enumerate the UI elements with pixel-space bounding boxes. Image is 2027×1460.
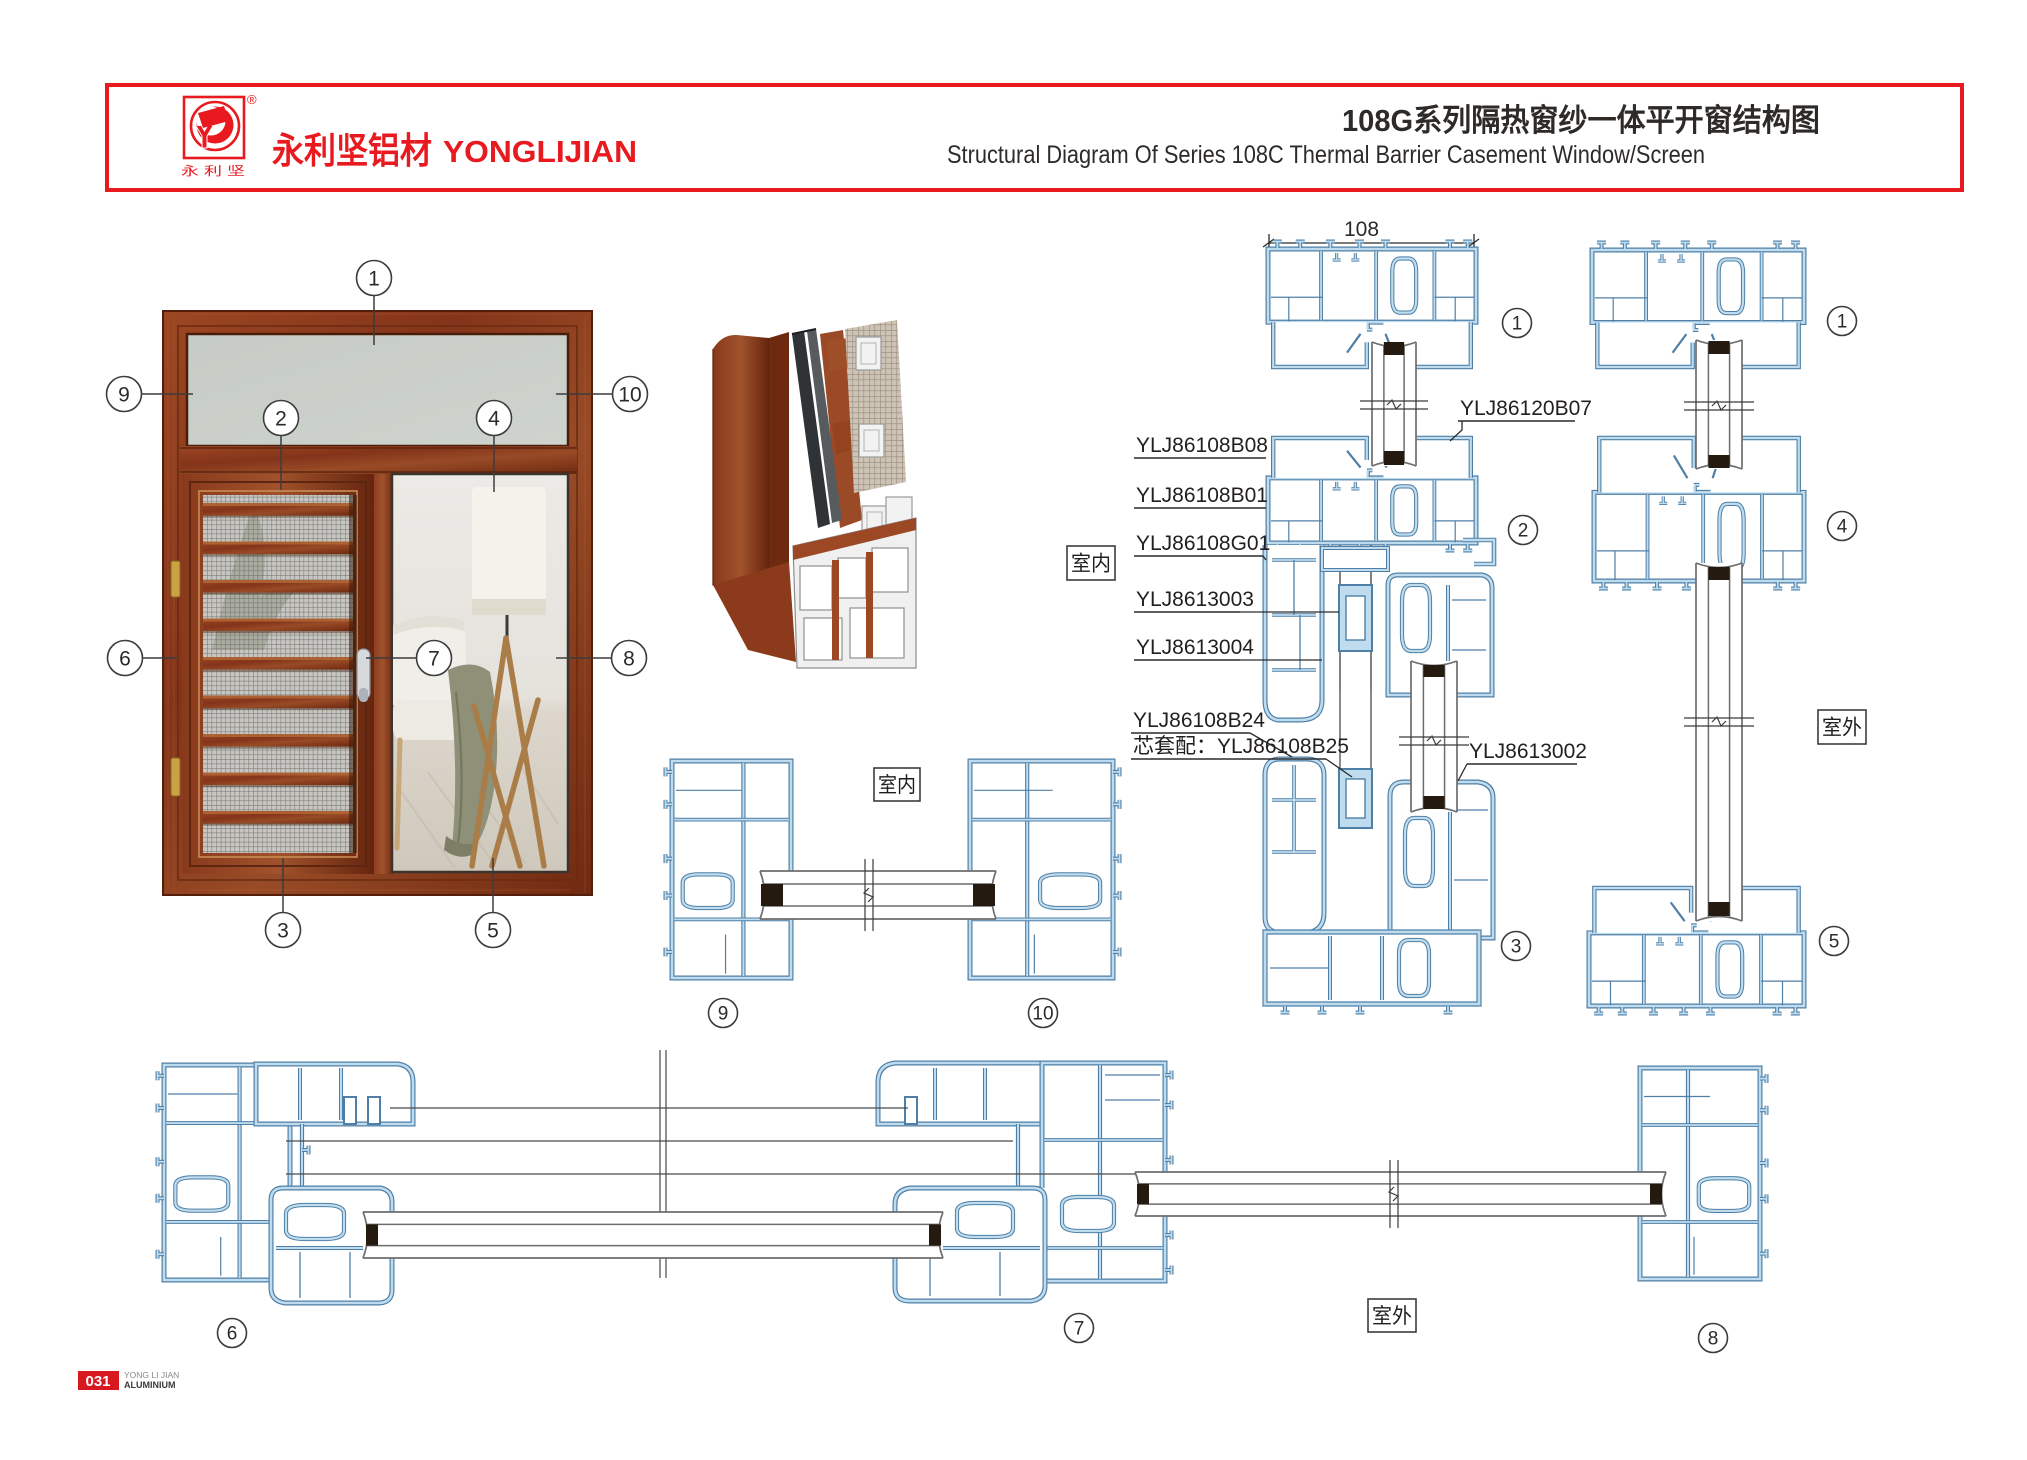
svg-text:031: 031 [85, 1373, 110, 1390]
svg-text:YONGLIJIAN: YONGLIJIAN [443, 134, 637, 169]
svg-text:1: 1 [1837, 312, 1848, 333]
svg-text:YLJ8613003: YLJ8613003 [1136, 588, 1254, 611]
svg-text:4: 4 [488, 407, 500, 430]
svg-text:3: 3 [1511, 937, 1522, 958]
svg-text:8: 8 [1708, 1329, 1719, 1350]
svg-text:1: 1 [368, 267, 380, 290]
svg-text:4: 4 [1837, 517, 1848, 538]
svg-text:YLJ86120B07: YLJ86120B07 [1460, 397, 1592, 420]
svg-text:108: 108 [1344, 218, 1379, 241]
svg-text:YLJ86108B08: YLJ86108B08 [1136, 434, 1268, 457]
svg-text:YLJ8613004: YLJ8613004 [1136, 636, 1254, 659]
svg-text:®: ® [247, 92, 257, 107]
svg-text:9: 9 [118, 383, 130, 406]
svg-text:YLJ8613002: YLJ8613002 [1469, 740, 1587, 763]
svg-text:室外: 室外 [1822, 717, 1862, 740]
svg-text:6: 6 [227, 1324, 238, 1345]
svg-text:YONG LI JIAN: YONG LI JIAN [124, 1370, 179, 1380]
svg-text:3: 3 [277, 919, 289, 942]
svg-text:ALUMINIUM: ALUMINIUM [124, 1380, 176, 1390]
svg-text:Structural Diagram Of Series 1: Structural Diagram Of Series 108C Therma… [947, 141, 1705, 169]
svg-text:108G系列隔热窗纱一体平开窗结构图: 108G系列隔热窗纱一体平开窗结构图 [1342, 103, 1820, 138]
svg-text:9: 9 [718, 1004, 729, 1025]
svg-text:永利坚铝材: 永利坚铝材 [272, 130, 432, 171]
svg-text:永 利 坚: 永 利 坚 [181, 164, 245, 178]
svg-text:室外: 室外 [1372, 1305, 1412, 1328]
svg-text:10: 10 [618, 383, 641, 406]
svg-text:5: 5 [1829, 932, 1840, 953]
svg-text:10: 10 [1032, 1004, 1053, 1025]
svg-text:芯套配：YLJ86108B25: 芯套配：YLJ86108B25 [1133, 735, 1349, 758]
svg-text:7: 7 [428, 647, 440, 670]
svg-text:7: 7 [1074, 1319, 1085, 1340]
svg-text:6: 6 [119, 647, 131, 670]
svg-text:YLJ86108B24: YLJ86108B24 [1133, 709, 1265, 732]
svg-text:2: 2 [275, 407, 287, 430]
svg-text:YLJ86108G01: YLJ86108G01 [1136, 532, 1270, 555]
svg-text:5: 5 [487, 919, 499, 942]
svg-text:1: 1 [1512, 314, 1523, 335]
svg-text:YLJ86108B01: YLJ86108B01 [1136, 484, 1268, 507]
svg-text:室内: 室内 [878, 774, 916, 797]
svg-text:室内: 室内 [1071, 553, 1111, 576]
svg-text:2: 2 [1518, 521, 1529, 542]
svg-text:8: 8 [623, 647, 635, 670]
